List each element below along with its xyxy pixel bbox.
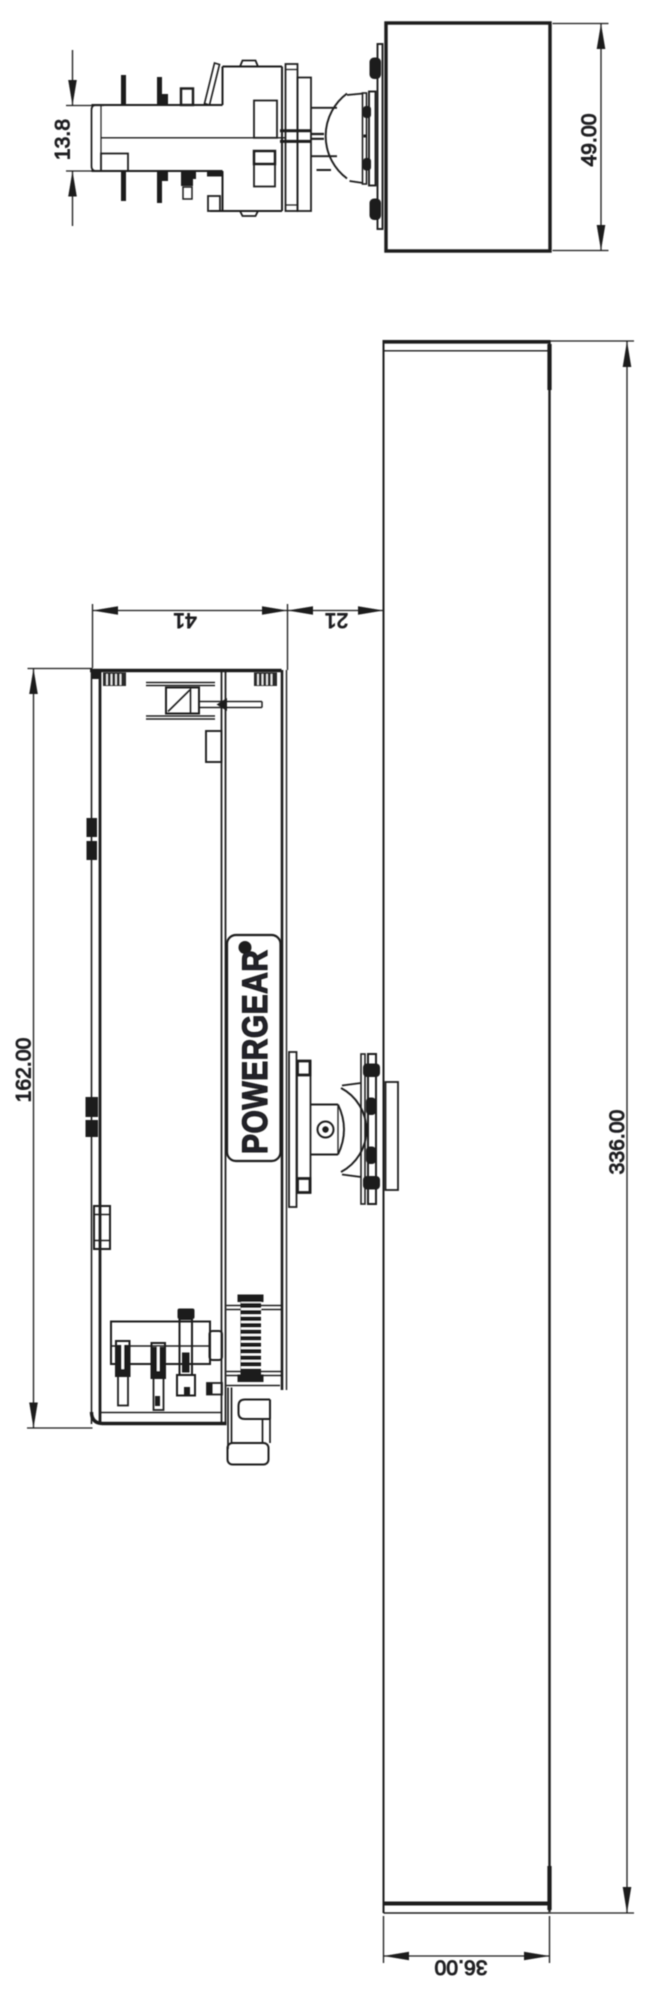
svg-text:13.8: 13.8 xyxy=(52,119,75,160)
svg-text:49.00: 49.00 xyxy=(578,113,601,166)
svg-text:36.00: 36.00 xyxy=(434,1956,487,1979)
svg-text:21: 21 xyxy=(325,609,349,632)
svg-text:336.00: 336.00 xyxy=(606,1110,629,1175)
svg-text:POWERGEAR: POWERGEAR xyxy=(235,950,275,1154)
svg-text:162.00: 162.00 xyxy=(13,1038,36,1103)
svg-text:41: 41 xyxy=(173,609,197,632)
